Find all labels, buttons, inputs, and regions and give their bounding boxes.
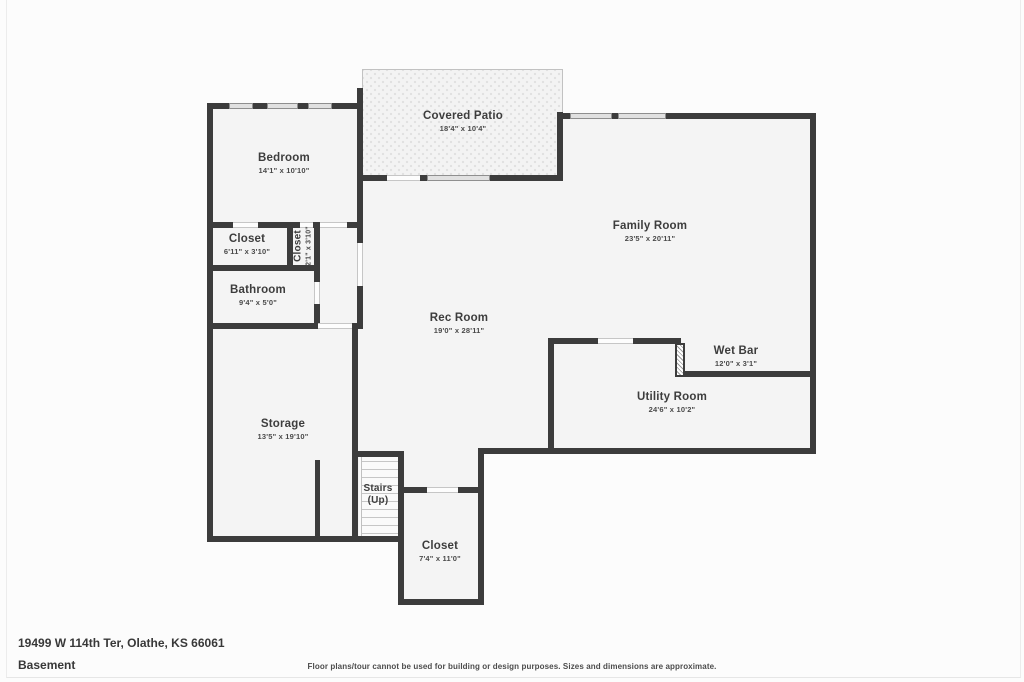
- room-label-family-room: Family Room 23'5" x 20'11": [613, 220, 687, 244]
- wall: [490, 175, 563, 181]
- room-name: Family Room: [613, 220, 687, 233]
- wall: [810, 113, 816, 453]
- disclaimer-text: Floor plans/tour cannot be used for buil…: [308, 662, 717, 671]
- window: [618, 113, 666, 119]
- door-opening: [320, 222, 347, 228]
- room-label-stairs: Stairs (Up): [364, 483, 393, 506]
- room-dims: 18'4" x 10'4": [423, 125, 503, 134]
- floor-plan-page: Bedroom 14'1" x 10'10" Covered Patio 18'…: [0, 0, 1024, 682]
- wall: [207, 103, 213, 542]
- room-name: Storage: [257, 418, 308, 431]
- room-dims: 13'5" x 19'10": [257, 433, 308, 442]
- door-opening: [314, 282, 320, 304]
- wall: [420, 175, 427, 181]
- window: [570, 113, 612, 119]
- window: [267, 103, 298, 109]
- window: [229, 103, 253, 109]
- room-dims: 6'11" x 3'10": [224, 248, 270, 257]
- room-dims: 7'4" x 11'0": [419, 555, 461, 564]
- floor-level-label: Basement: [18, 658, 75, 672]
- room-label-rec-room: Rec Room 19'0" x 28'11": [430, 312, 488, 336]
- room-label-lower-closet: Closet 7'4" x 11'0": [419, 540, 461, 564]
- wall: [352, 323, 358, 542]
- room-label-wet-bar: Wet Bar 12'0" x 3'1": [714, 345, 759, 369]
- wet-bar-counter-wall: [675, 343, 685, 377]
- room-name: Closet: [419, 540, 461, 553]
- wall: [681, 371, 816, 377]
- room-name: Closet: [293, 226, 305, 266]
- fill-lower-closet: [401, 451, 481, 602]
- room-label-covered-patio: Covered Patio 18'4" x 10'4": [423, 110, 503, 134]
- room-name: Rec Room: [430, 312, 488, 325]
- room-label-bathroom: Bathroom 9'4" x 5'0": [230, 284, 286, 308]
- room-dims: 23'5" x 20'11": [613, 235, 687, 244]
- wall: [315, 460, 320, 536]
- room-dims: 2'1" x 3'10": [305, 226, 313, 266]
- room-dims: 14'1" x 10'10": [258, 167, 310, 176]
- wall: [207, 536, 404, 542]
- wall: [557, 112, 563, 181]
- window: [308, 103, 332, 109]
- wall: [314, 222, 320, 282]
- room-label-closet: Closet 6'11" x 3'10": [224, 233, 270, 257]
- door-opening: [598, 338, 633, 344]
- door-opening: [233, 222, 258, 228]
- wall: [548, 338, 554, 453]
- room-name: Bedroom: [258, 152, 310, 165]
- room-label-bedroom: Bedroom 14'1" x 10'10": [258, 152, 310, 176]
- wall: [478, 448, 484, 605]
- room-dims: 24'6" x 10'2": [637, 406, 707, 415]
- room-label-utility-room: Utility Room 24'6" x 10'2": [637, 391, 707, 415]
- room-label-closet-vertical: Closet 2'1" x 3'10": [293, 226, 314, 266]
- door-opening: [357, 243, 363, 286]
- room-name: Utility Room: [637, 391, 707, 404]
- wall: [207, 265, 320, 271]
- room-dims: 19'0" x 28'11": [430, 327, 488, 336]
- property-address: 19499 W 114th Ter, Olathe, KS 66061: [18, 636, 225, 650]
- door-opening: [318, 323, 352, 329]
- room-name: Bathroom: [230, 284, 286, 297]
- wall: [398, 599, 484, 605]
- room-name: Closet: [224, 233, 270, 246]
- room-name: Covered Patio: [423, 110, 503, 123]
- wall: [362, 175, 387, 181]
- wall: [478, 448, 816, 454]
- room-dims: (Up): [364, 495, 393, 507]
- room-dims: 9'4" x 5'0": [230, 299, 286, 308]
- door-opening: [427, 487, 458, 493]
- room-label-storage: Storage 13'5" x 19'10": [257, 418, 308, 442]
- room-name: Wet Bar: [714, 345, 759, 358]
- patio-sliding-door: [427, 175, 490, 181]
- door-opening: [387, 175, 420, 181]
- room-name: Stairs: [364, 483, 393, 495]
- wall: [398, 487, 404, 605]
- wall: [357, 88, 363, 243]
- room-dims: 12'0" x 3'1": [714, 360, 759, 369]
